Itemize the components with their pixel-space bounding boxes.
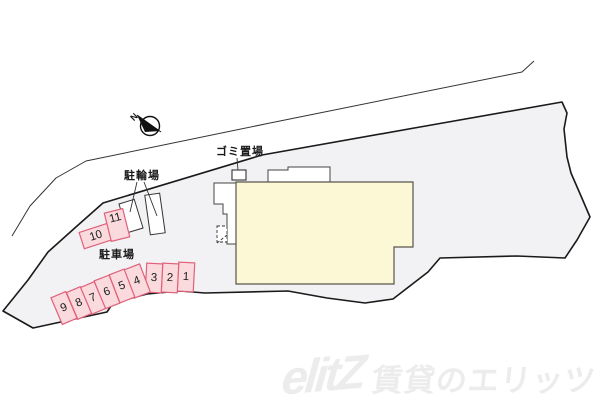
garbage-area-label: ゴミ置場 <box>216 144 264 158</box>
north-arrow: N <box>128 111 161 135</box>
parking-space-number: 1 <box>182 271 189 283</box>
bicycle-parking-label: 駐輪場 <box>124 168 160 182</box>
site-plan-svg: ゴミ置場 駐輪場 駐車場 1 2 3 4 5 6 7 8 <box>0 0 600 400</box>
garbage-box <box>232 170 246 180</box>
north-label: N <box>128 111 140 123</box>
parking-space-number: 3 <box>150 272 157 284</box>
parking-lot-label: 駐車場 <box>99 247 135 261</box>
site-plan: ゴミ置場 駐輪場 駐車場 1 2 3 4 5 6 7 8 <box>0 0 600 400</box>
building-footprint <box>236 182 413 284</box>
parking-space-number: 2 <box>166 272 173 284</box>
entrance-steps-dashed <box>217 226 227 243</box>
parking-space-2: 2 <box>161 263 178 293</box>
parking-space-1: 1 <box>177 262 194 292</box>
